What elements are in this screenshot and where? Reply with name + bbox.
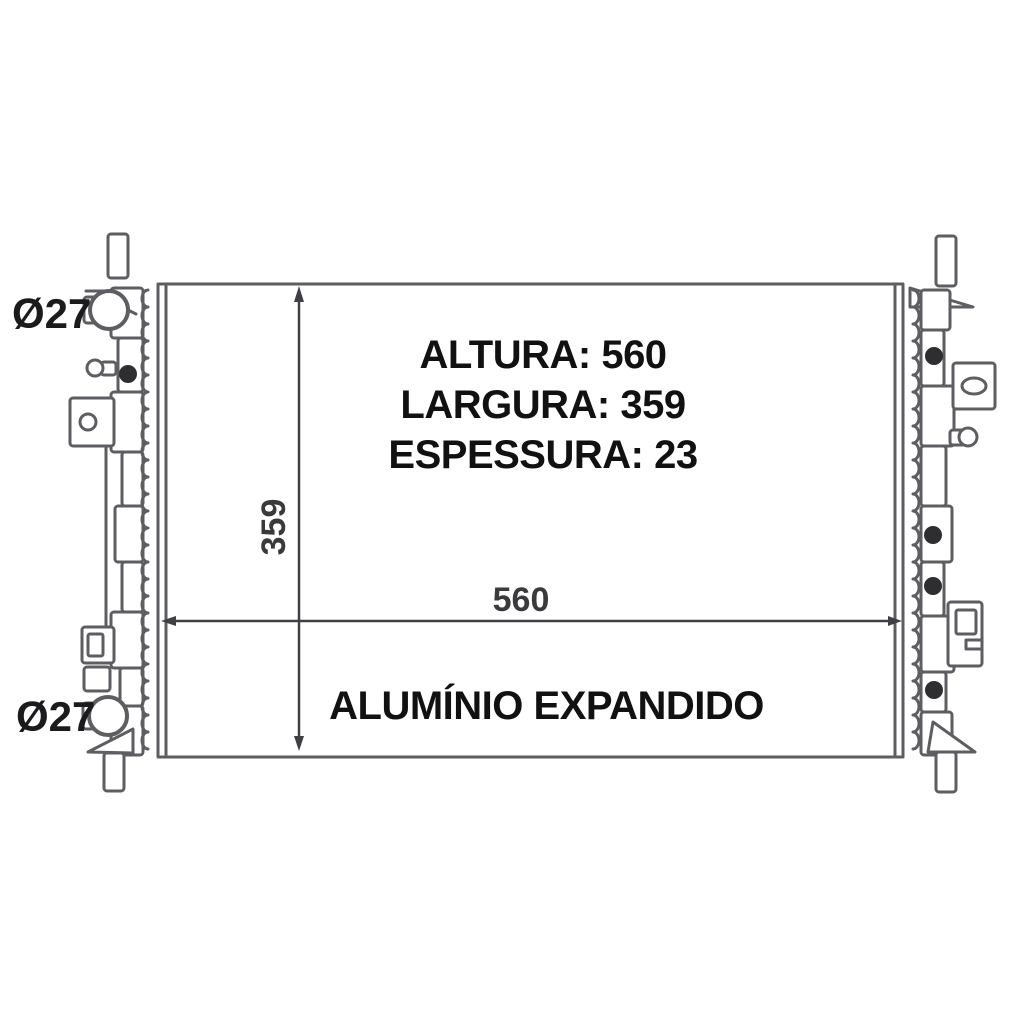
top-pipe-diameter-label: Ø27 bbox=[12, 290, 91, 337]
left-sensor-cap bbox=[87, 360, 103, 376]
radiator-drawing: 359 560 Ø27 Ø27 bbox=[0, 0, 1024, 1024]
left-lower-bracket-slot bbox=[88, 634, 103, 656]
height-dim-label: 359 bbox=[255, 499, 293, 556]
width-dim-label: 560 bbox=[493, 581, 550, 619]
left-bottom-mounting-pin bbox=[104, 753, 124, 791]
right-bolt-dot bbox=[924, 577, 942, 595]
left-tank-segment bbox=[122, 452, 143, 506]
radiator-diagram-image: 359 560 Ø27 Ø27 ALTURA: 560 LARGURA: 359… bbox=[0, 0, 1024, 1024]
left-top-mounting-pin bbox=[108, 234, 128, 278]
spec-line-altura: ALTURA: 560 bbox=[308, 330, 778, 380]
spec-text-block: ALTURA: 560 LARGURA: 359 ESPESSURA: 23 bbox=[308, 330, 778, 480]
right-tank bbox=[910, 236, 995, 792]
material-label: ALUMÍNIO EXPANDIDO bbox=[284, 684, 809, 729]
right-lower-bracket-slot bbox=[956, 610, 976, 634]
right-mounting-bracket bbox=[953, 363, 995, 409]
right-serration bbox=[913, 290, 919, 749]
right-bottom-mounting-pin bbox=[936, 752, 956, 792]
left-tank-segment bbox=[122, 562, 143, 612]
spec-line-largura: LARGURA: 359 bbox=[308, 380, 778, 430]
bottom-pipe-diameter-label: Ø27 bbox=[16, 693, 95, 740]
left-inlet-pipe bbox=[90, 291, 128, 329]
left-tank-segment bbox=[118, 338, 143, 392]
left-bolt-dot bbox=[119, 365, 137, 383]
right-bolt-dot bbox=[925, 681, 943, 699]
right-bolt-dot bbox=[925, 347, 943, 365]
spec-line-espessura: ESPESSURA: 23 bbox=[308, 430, 778, 480]
left-mounting-bracket bbox=[70, 398, 114, 446]
right-top-mounting-pin bbox=[936, 236, 956, 286]
right-tank-segment bbox=[921, 446, 946, 506]
left-tank-segment bbox=[120, 668, 143, 706]
right-bolt-dot bbox=[924, 526, 942, 544]
left-tank-segment bbox=[111, 612, 143, 668]
left-lower-tab bbox=[84, 667, 110, 691]
right-tank-segment bbox=[921, 290, 950, 330]
right-tab bbox=[959, 428, 977, 446]
left-tank-segment bbox=[115, 506, 143, 562]
left-tank-segment bbox=[111, 392, 143, 452]
